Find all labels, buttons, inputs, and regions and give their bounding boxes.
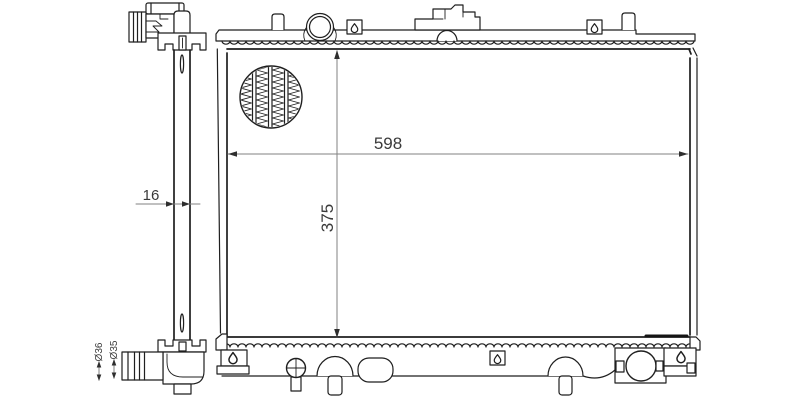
right-edge-outer — [693, 48, 697, 335]
top-tab-right — [622, 13, 635, 30]
dim-outlet-inner-label: Ø35 — [109, 340, 120, 359]
radiator-technical-drawing: 16 Ø36 Ø35 — [0, 0, 800, 400]
drain-plug — [287, 359, 306, 392]
core-detail-circle — [240, 64, 302, 130]
arrowhead-icon — [334, 50, 340, 59]
dimension-core-height: 375 — [318, 50, 340, 338]
arrowhead-icon — [166, 201, 174, 206]
dimension-core-width: 598 — [228, 134, 688, 157]
drawing-svg: 16 Ø36 Ø35 — [0, 0, 800, 400]
sensor-boss-top-right — [587, 20, 602, 34]
arrowhead-icon — [679, 151, 688, 157]
outlet-housing — [615, 348, 666, 383]
bottom-right-bracket — [664, 348, 696, 376]
filler-neck — [307, 14, 334, 41]
dim-core-height-label: 375 — [318, 204, 337, 232]
top-tab-left — [272, 14, 284, 30]
sensor-boss-top-left — [347, 20, 362, 34]
bottom-left-end-cap — [216, 334, 227, 350]
arrowhead-icon — [97, 375, 102, 382]
arrowhead-icon — [228, 151, 237, 157]
bottom-blob-fitting — [358, 358, 393, 382]
bottom-left-bracket — [217, 350, 249, 374]
side-view-outlet-assembly — [122, 340, 206, 394]
dimension-outlet-diameters: Ø36 Ø35 — [94, 340, 120, 381]
dim-tank-depth-label: 16 — [143, 187, 160, 204]
right-edge-inner — [689, 49, 691, 335]
side-view: 16 Ø36 Ø35 — [94, 3, 206, 394]
arrowhead-icon — [182, 201, 190, 206]
bottom-serration — [222, 344, 694, 347]
dim-core-width-label: 598 — [374, 134, 402, 153]
side-view-tank-body — [174, 50, 190, 340]
sensor-boss-bottom — [490, 351, 505, 365]
front-view: 598 375 — [216, 5, 700, 395]
arrowhead-icon — [112, 373, 117, 380]
side-view-filler-cap-assembly — [129, 3, 206, 50]
bottom-dome-right — [548, 357, 583, 395]
bottom-dome-left — [317, 357, 353, 396]
left-edge-outer — [217, 49, 220, 333]
dim-outlet-outer-label: Ø36 — [94, 342, 105, 361]
